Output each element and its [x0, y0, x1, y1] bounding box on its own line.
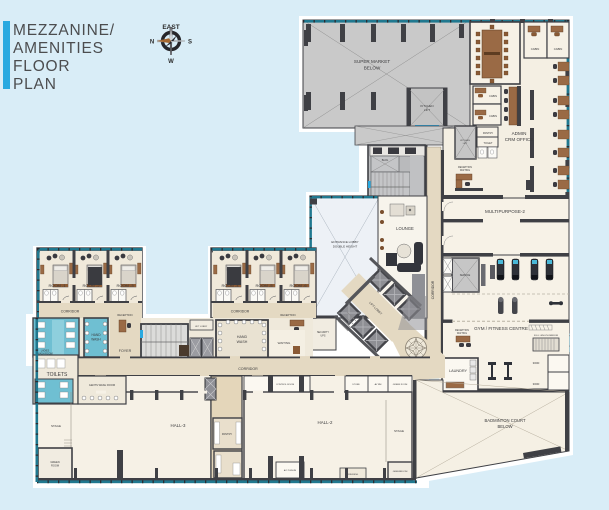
svg-text:MEZZANINE/: MEZZANINE/	[13, 22, 115, 39]
svg-text:GYM / FITNESS CENTRE: GYM / FITNESS CENTRE	[474, 326, 528, 331]
svg-text:DOUBLE HEIGHT: DOUBLE HEIGHT	[333, 245, 358, 249]
svg-text:BELOW: BELOW	[364, 66, 381, 71]
svg-text:WAITING: WAITING	[460, 169, 470, 172]
svg-text:UPS: UPS	[321, 335, 326, 338]
svg-text:W: W	[168, 59, 174, 65]
svg-text:CRM OFFICE: CRM OFFICE	[505, 137, 534, 142]
svg-text:HALL-3: HALL-3	[171, 423, 186, 428]
svg-text:STAGE: STAGE	[394, 429, 404, 433]
svg-text:MULTIPURPOSE-2: MULTIPURPOSE-2	[485, 209, 525, 214]
svg-text:GREEN ROOM: GREEN ROOM	[393, 384, 408, 386]
svg-text:ROOM -5: ROOM -5	[255, 283, 273, 288]
svg-text:RECEPTION: RECEPTION	[117, 313, 132, 317]
svg-text:CABIN: CABIN	[489, 94, 497, 98]
svg-text:LAUNDRY: LAUNDRY	[449, 369, 468, 373]
svg-text:S: S	[188, 40, 192, 46]
svg-text:LIFT: LIFT	[424, 108, 430, 112]
svg-text:ROOM -2: ROOM -2	[82, 283, 100, 288]
svg-text:GENTS WASH ROOM: GENTS WASH ROOM	[89, 383, 115, 387]
svg-text:AMENITIES: AMENITIES	[13, 40, 104, 57]
svg-text:PANTRY: PANTRY	[483, 131, 494, 135]
svg-text:ROOM -4: ROOM -4	[221, 283, 239, 288]
svg-text:TOILETS: TOILETS	[47, 372, 68, 378]
svg-text:LIFT: LIFT	[463, 143, 468, 145]
svg-text:FOYER: FOYER	[119, 349, 132, 353]
svg-text:CORRIDOR: CORRIDOR	[61, 310, 80, 314]
svg-text:3000: 3000	[533, 361, 540, 365]
svg-text:WASH: WASH	[237, 340, 248, 344]
svg-text:ROOM -6: ROOM -6	[289, 283, 307, 288]
svg-text:RECEPTION: RECEPTION	[280, 313, 295, 317]
svg-text:BELOW: BELOW	[497, 424, 512, 429]
svg-text:ENTRANCE LOBBY: ENTRANCE LOBBY	[331, 240, 358, 244]
svg-text:CABIN: CABIN	[531, 47, 540, 51]
svg-text:ADMIN: ADMIN	[512, 131, 527, 136]
svg-text:A/C PLENUM: A/C PLENUM	[284, 469, 297, 472]
svg-text:ROOM -3: ROOM -3	[116, 283, 134, 288]
svg-text:AV RM: AV RM	[375, 383, 382, 386]
svg-text:STAGE: STAGE	[51, 424, 61, 428]
svg-text:DRESSING: DRESSING	[348, 474, 359, 476]
svg-text:N: N	[150, 40, 154, 46]
svg-text:LOUNGE: LOUNGE	[396, 226, 414, 231]
svg-text:CORRIDOR: CORRIDOR	[231, 310, 250, 314]
svg-text:GREENROOM: GREENROOM	[393, 471, 408, 473]
svg-text:WAITING: WAITING	[278, 341, 291, 345]
svg-text:TOILET: TOILET	[483, 141, 492, 145]
svg-text:PANTRY: PANTRY	[222, 432, 233, 436]
svg-text:KITCHEN: KITCHEN	[460, 140, 470, 142]
svg-text:CABIN: CABIN	[489, 114, 497, 118]
svg-text:SUPER MARKET: SUPER MARKET	[354, 59, 390, 64]
svg-text:CORRIDOR: CORRIDOR	[238, 367, 258, 371]
svg-text:ROOM -1: ROOM -1	[48, 283, 66, 288]
svg-text:BADMINTON COURT: BADMINTON COURT	[484, 418, 525, 423]
svg-text:CABIN: CABIN	[554, 47, 563, 51]
svg-text:ROOM: ROOM	[51, 464, 59, 468]
svg-text:FULL LENGTH MIRROR: FULL LENGTH MIRROR	[534, 335, 559, 337]
svg-text:HAND: HAND	[237, 335, 248, 339]
svg-text:CONTROL ROOM: CONTROL ROOM	[276, 384, 294, 386]
svg-text:WAITING: WAITING	[457, 332, 467, 335]
svg-text:FLOOR: FLOOR	[13, 58, 70, 75]
svg-text:SERVICE: SERVICE	[460, 274, 471, 277]
svg-text:HALL-2: HALL-2	[318, 420, 333, 425]
svg-text:CORRIDOR: CORRIDOR	[431, 280, 435, 299]
svg-text:GREEN: GREEN	[50, 460, 59, 464]
svg-text:BLDG: BLDG	[382, 159, 389, 162]
svg-text:STORE: STORE	[352, 384, 360, 386]
svg-text:WASH: WASH	[91, 338, 101, 342]
svg-text:3000: 3000	[533, 382, 540, 386]
svg-text:PLAN: PLAN	[13, 76, 57, 93]
svg-text:LIFT LOBBY: LIFT LOBBY	[195, 326, 208, 328]
svg-text:HAND: HAND	[91, 333, 101, 337]
